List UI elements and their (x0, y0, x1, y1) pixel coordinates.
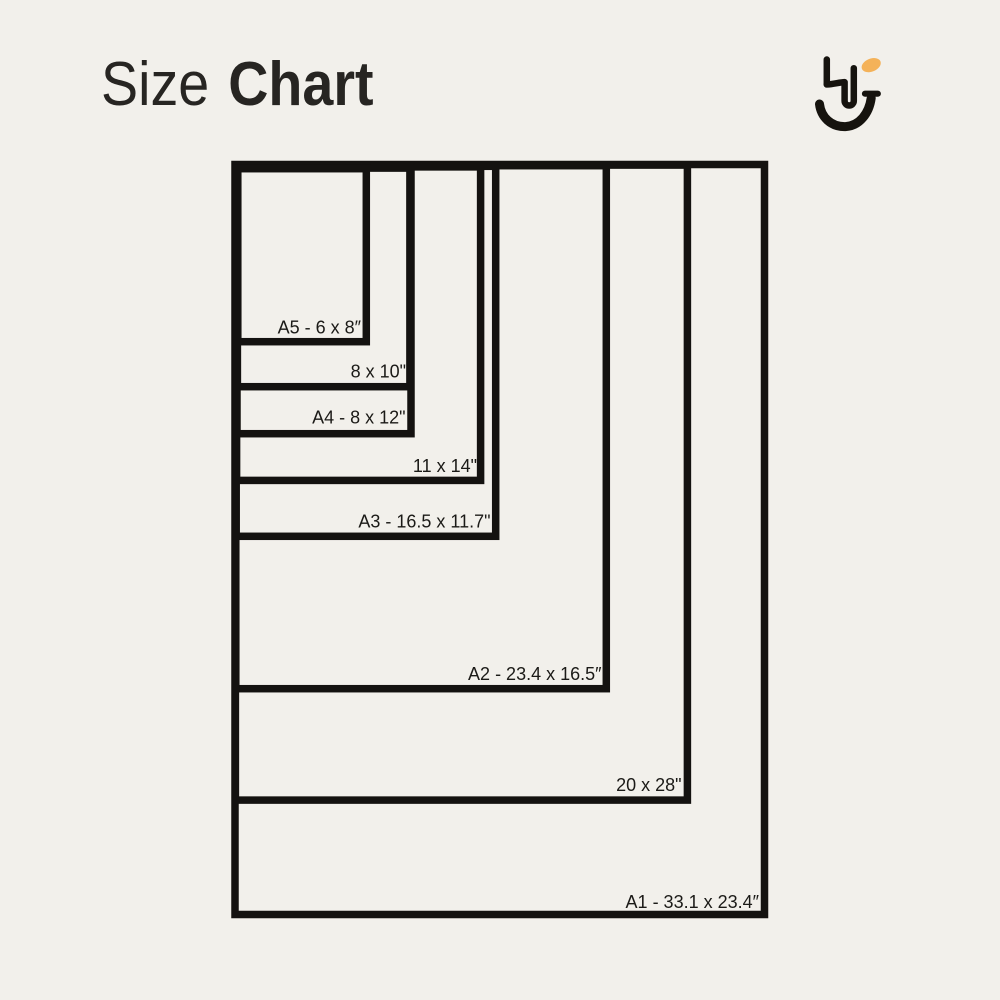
svg-text:A2 - 23.4 x 16.5″: A2 - 23.4 x 16.5″ (468, 664, 602, 684)
svg-text:A4 - 8 x 12": A4 - 8 x 12" (312, 408, 405, 428)
svg-text:20 x 28": 20 x 28" (616, 775, 681, 795)
svg-text:A3 - 16.5 x 11.7": A3 - 16.5 x 11.7" (358, 512, 490, 532)
svg-text:A1 - 33.1 x 23.4″: A1 - 33.1 x 23.4″ (626, 892, 760, 912)
svg-text:11 x 14": 11 x 14" (413, 456, 477, 476)
svg-text:8 x 10": 8 x 10" (351, 362, 406, 382)
svg-text:A5 - 6 x 8″: A5 - 6 x 8″ (278, 318, 362, 338)
